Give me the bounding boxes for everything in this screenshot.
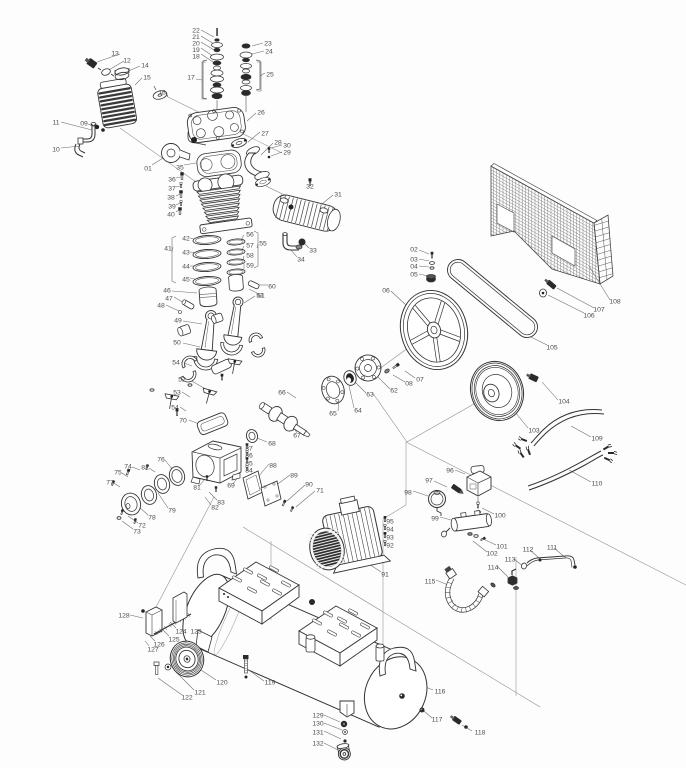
svg-text:101: 101 [496, 544, 508, 551]
svg-text:103: 103 [528, 428, 540, 435]
svg-text:99: 99 [431, 516, 439, 523]
svg-text:120: 120 [216, 680, 228, 687]
svg-text:36: 36 [168, 177, 176, 184]
svg-text:91: 91 [381, 572, 389, 579]
svg-text:75: 75 [114, 470, 122, 477]
svg-text:55: 55 [259, 241, 267, 248]
svg-text:60: 60 [268, 284, 276, 291]
svg-text:15: 15 [143, 75, 151, 82]
svg-text:71: 71 [316, 488, 324, 495]
svg-text:131: 131 [312, 730, 324, 737]
svg-text:33: 33 [309, 248, 317, 255]
svg-text:68: 68 [268, 441, 276, 448]
svg-text:41: 41 [164, 246, 172, 253]
svg-text:96: 96 [446, 468, 454, 475]
svg-text:14: 14 [141, 63, 149, 70]
svg-text:35: 35 [176, 165, 184, 172]
svg-text:132: 132 [312, 741, 324, 748]
svg-text:106: 106 [583, 313, 595, 320]
svg-text:88: 88 [269, 463, 277, 470]
svg-text:94: 94 [386, 527, 394, 534]
svg-text:28: 28 [274, 140, 282, 147]
svg-text:82: 82 [141, 465, 149, 472]
svg-text:11: 11 [52, 120, 59, 127]
svg-text:107: 107 [593, 307, 605, 314]
svg-text:111: 111 [547, 545, 558, 552]
svg-text:13: 13 [111, 51, 119, 58]
svg-text:44: 44 [182, 264, 190, 271]
svg-text:08: 08 [405, 381, 413, 388]
svg-text:95: 95 [386, 519, 394, 526]
svg-text:122: 122 [181, 695, 193, 702]
svg-text:38: 38 [167, 195, 175, 202]
svg-text:17: 17 [187, 75, 195, 82]
svg-text:79: 79 [168, 508, 176, 515]
svg-text:112: 112 [523, 547, 534, 554]
svg-text:127: 127 [147, 647, 159, 654]
svg-text:45: 45 [182, 277, 190, 284]
svg-text:67: 67 [293, 433, 301, 440]
svg-text:50: 50 [173, 340, 181, 347]
svg-text:53: 53 [173, 390, 181, 397]
svg-text:10: 10 [52, 147, 60, 154]
svg-text:86: 86 [245, 453, 253, 460]
svg-text:02: 02 [410, 247, 418, 254]
svg-text:43: 43 [182, 250, 190, 257]
svg-text:81: 81 [193, 485, 201, 492]
svg-text:121: 121 [194, 690, 206, 697]
svg-text:46: 46 [163, 288, 171, 295]
svg-text:54: 54 [172, 360, 180, 367]
svg-text:98: 98 [404, 490, 412, 497]
svg-text:73: 73 [133, 529, 141, 536]
svg-text:108: 108 [609, 299, 621, 306]
svg-text:27: 27 [261, 131, 269, 138]
svg-text:123: 123 [190, 629, 202, 636]
svg-text:51: 51 [256, 293, 264, 300]
svg-text:78: 78 [148, 515, 156, 522]
svg-text:18: 18 [192, 54, 200, 61]
svg-text:114: 114 [488, 565, 499, 572]
svg-text:109: 109 [591, 436, 603, 443]
svg-text:110: 110 [592, 481, 603, 488]
svg-text:64: 64 [354, 408, 362, 415]
svg-text:03: 03 [410, 257, 418, 264]
svg-text:57: 57 [246, 243, 254, 250]
svg-text:124: 124 [175, 629, 187, 636]
svg-text:129: 129 [312, 713, 324, 720]
svg-text:47: 47 [165, 296, 173, 303]
svg-text:105: 105 [546, 345, 558, 352]
svg-text:85: 85 [245, 461, 253, 468]
svg-text:87: 87 [245, 446, 253, 453]
svg-text:113: 113 [505, 557, 516, 564]
svg-text:82: 82 [211, 505, 219, 512]
svg-text:92: 92 [386, 543, 394, 550]
svg-text:05: 05 [410, 272, 418, 279]
svg-text:12: 12 [123, 58, 131, 65]
svg-text:118: 118 [475, 730, 486, 737]
svg-text:70: 70 [179, 418, 187, 425]
svg-text:29: 29 [283, 150, 291, 157]
svg-text:69: 69 [227, 483, 235, 490]
svg-text:42: 42 [182, 236, 190, 243]
svg-text:76: 76 [157, 457, 165, 464]
svg-text:49: 49 [174, 318, 182, 325]
svg-text:77: 77 [106, 480, 114, 487]
svg-text:40: 40 [167, 212, 175, 219]
svg-text:97: 97 [425, 478, 433, 485]
svg-text:56: 56 [246, 232, 254, 239]
svg-text:30: 30 [283, 143, 291, 150]
svg-text:48: 48 [157, 303, 165, 310]
svg-text:125: 125 [168, 637, 180, 644]
svg-text:39: 39 [168, 204, 176, 211]
svg-text:26: 26 [257, 110, 265, 117]
svg-text:04: 04 [410, 264, 418, 271]
svg-text:62: 62 [390, 388, 398, 395]
svg-text:119: 119 [265, 680, 276, 687]
svg-text:116: 116 [435, 689, 446, 696]
svg-text:37: 37 [168, 186, 176, 193]
svg-text:66: 66 [278, 390, 286, 397]
svg-text:23: 23 [264, 41, 272, 48]
svg-text:32: 32 [306, 184, 314, 191]
svg-text:128: 128 [118, 613, 130, 620]
svg-text:130: 130 [312, 721, 324, 728]
svg-text:09: 09 [80, 121, 88, 128]
svg-text:06: 06 [382, 288, 390, 295]
svg-text:93: 93 [386, 535, 394, 542]
svg-text:84: 84 [245, 468, 253, 475]
svg-text:24: 24 [265, 49, 273, 56]
svg-text:16: 16 [158, 90, 166, 97]
svg-text:52: 52 [178, 377, 186, 384]
svg-text:117: 117 [432, 717, 443, 724]
svg-text:102: 102 [486, 551, 498, 558]
svg-text:115: 115 [425, 579, 436, 586]
svg-text:65: 65 [329, 411, 337, 418]
svg-text:100: 100 [494, 513, 506, 520]
svg-text:74: 74 [124, 464, 132, 471]
svg-text:104: 104 [558, 399, 570, 406]
svg-text:89: 89 [290, 473, 298, 480]
svg-text:58: 58 [246, 253, 254, 260]
svg-text:59: 59 [246, 263, 254, 270]
svg-text:01: 01 [144, 166, 152, 173]
svg-text:25: 25 [266, 72, 274, 79]
svg-text:90: 90 [305, 482, 313, 489]
svg-text:07: 07 [416, 377, 424, 384]
svg-text:54: 54 [171, 405, 179, 412]
svg-text:63: 63 [366, 392, 374, 399]
svg-text:31: 31 [334, 192, 342, 199]
svg-text:34: 34 [297, 257, 305, 264]
